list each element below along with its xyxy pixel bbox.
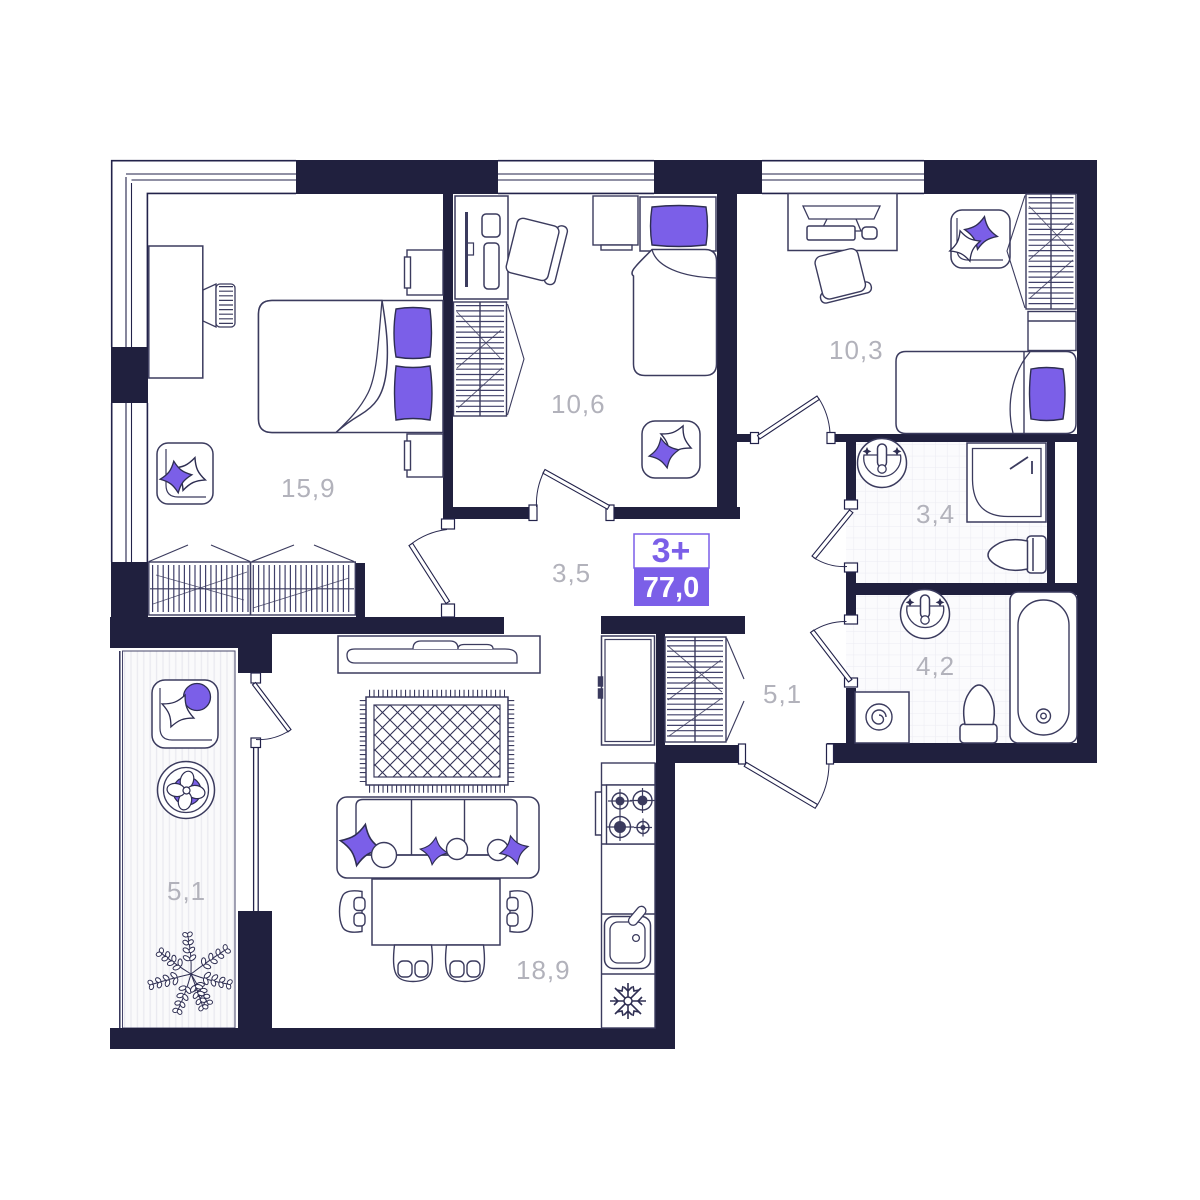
svg-text:10,6: 10,6	[551, 389, 606, 419]
svg-text:4,2: 4,2	[916, 651, 955, 681]
svg-text:3+: 3+	[652, 532, 691, 570]
svg-text:15,9: 15,9	[281, 473, 336, 503]
svg-text:3,4: 3,4	[916, 499, 955, 529]
svg-text:3,5: 3,5	[552, 558, 591, 588]
svg-text:5,1: 5,1	[167, 876, 206, 906]
svg-text:18,9: 18,9	[516, 955, 571, 985]
svg-text:10,3: 10,3	[829, 335, 884, 365]
svg-text:5,1: 5,1	[763, 679, 802, 709]
svg-text:77,0: 77,0	[643, 572, 699, 604]
